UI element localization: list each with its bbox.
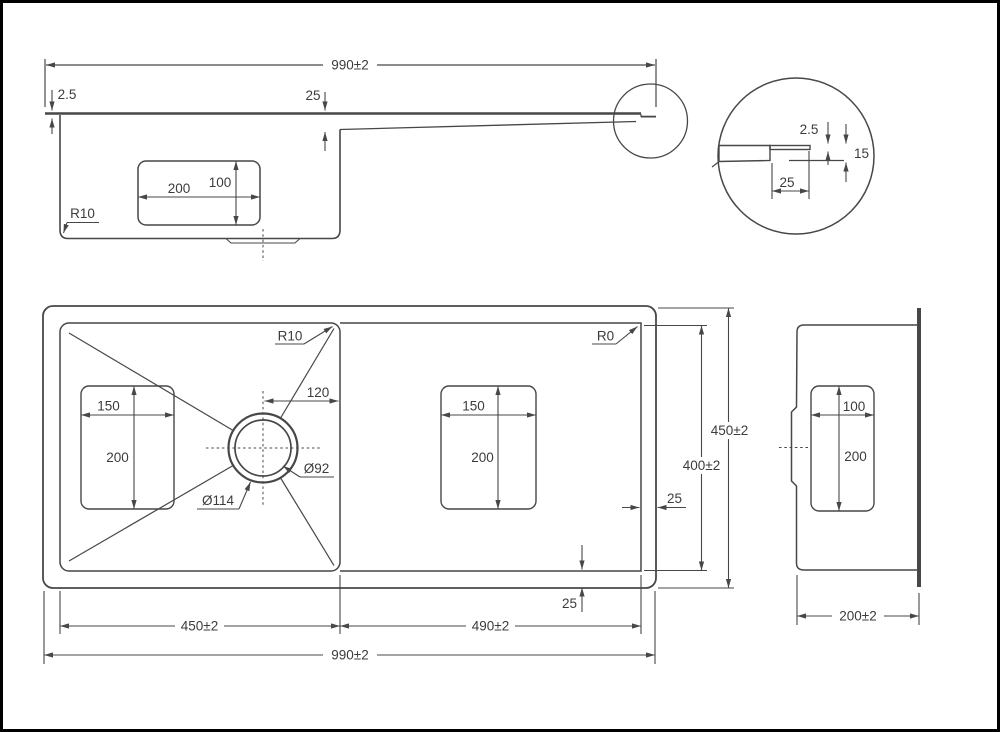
plan-bowl-zone-width-label: 150 [97, 399, 120, 414]
bowl-slope-line [69, 333, 234, 431]
sink-technical-drawing: 990±2 2.5 25 200 100 R10 [3, 3, 997, 729]
callout-leader [64, 223, 68, 234]
plan-drainboard-width-label: 490±2 [472, 619, 509, 634]
drawing-sheet: 990±2 2.5 25 200 100 R10 [0, 0, 1000, 732]
end-overall-depth-label: 200±2 [839, 609, 876, 624]
rim-lip-plate [770, 146, 810, 150]
side-drain-zone-depth-label: 100 [209, 175, 232, 190]
plan-drain-inner-dia-label: Ø92 [304, 461, 330, 476]
side-drain-zone-length-label: 200 [168, 181, 191, 196]
edge-detail-view: 2.5 15 25 [712, 78, 874, 234]
plan-view: R10 R0 120 150 200 150 200 Ø92 Ø114 [43, 306, 752, 664]
detail-bubble-circle [718, 78, 874, 234]
board-zone-rect [441, 386, 536, 509]
end-zone-depth-label: 200 [844, 449, 867, 464]
plan-bowl-width-label: 450±2 [181, 619, 218, 634]
plan-rim-width-right-label: 25 [667, 491, 682, 506]
bowl-slope-line [69, 465, 234, 561]
side-drainboard-drop-label: 25 [305, 88, 320, 103]
bowl-profile [60, 115, 340, 239]
plan-outer-depth-label: 450±2 [711, 423, 748, 438]
detail-reference-circle [614, 84, 688, 158]
bowl-zone-rect [81, 386, 174, 509]
side-total-width-label: 990±2 [331, 58, 368, 73]
detail-edge-height-label: 15 [854, 146, 869, 161]
drainboard-slope-line [340, 122, 636, 130]
side-rim-thickness-label: 2.5 [58, 87, 77, 102]
drain-zone-rect [138, 161, 260, 225]
plan-drain-outer-dia-label: Ø114 [202, 493, 235, 508]
callout-leader [304, 327, 333, 345]
plan-drain-offset-label: 120 [307, 385, 330, 400]
side-elevation-view: 990±2 2.5 25 200 100 R10 [45, 56, 688, 261]
sink-outer-outline [43, 306, 656, 588]
end-view: 100 200 200±2 [779, 308, 919, 625]
end-zone-width-label: 100 [843, 399, 866, 414]
side-corner-radius-label: R10 [70, 206, 95, 221]
bowl-slope-line [280, 477, 334, 566]
plan-rim-width-bottom-label: 25 [562, 596, 577, 611]
plan-total-width-label: 990±2 [331, 648, 368, 663]
plan-inner-depth-label: 400±2 [683, 458, 720, 473]
callout-leader [239, 482, 251, 509]
plan-board-zone-length-label: 200 [471, 450, 494, 465]
rim-edge-block [719, 146, 770, 162]
detail-rim-thickness-label: 2.5 [800, 122, 819, 137]
plan-drainboard-radius-label: R0 [597, 329, 614, 344]
plan-board-zone-width-label: 150 [462, 399, 485, 414]
plan-bowl-zone-length-label: 200 [106, 450, 129, 465]
detail-edge-inset-label: 25 [779, 175, 794, 190]
drainboard-inner-outline [340, 323, 641, 571]
callout-leader [616, 327, 638, 345]
plan-bowl-radius-label: R10 [278, 329, 303, 344]
